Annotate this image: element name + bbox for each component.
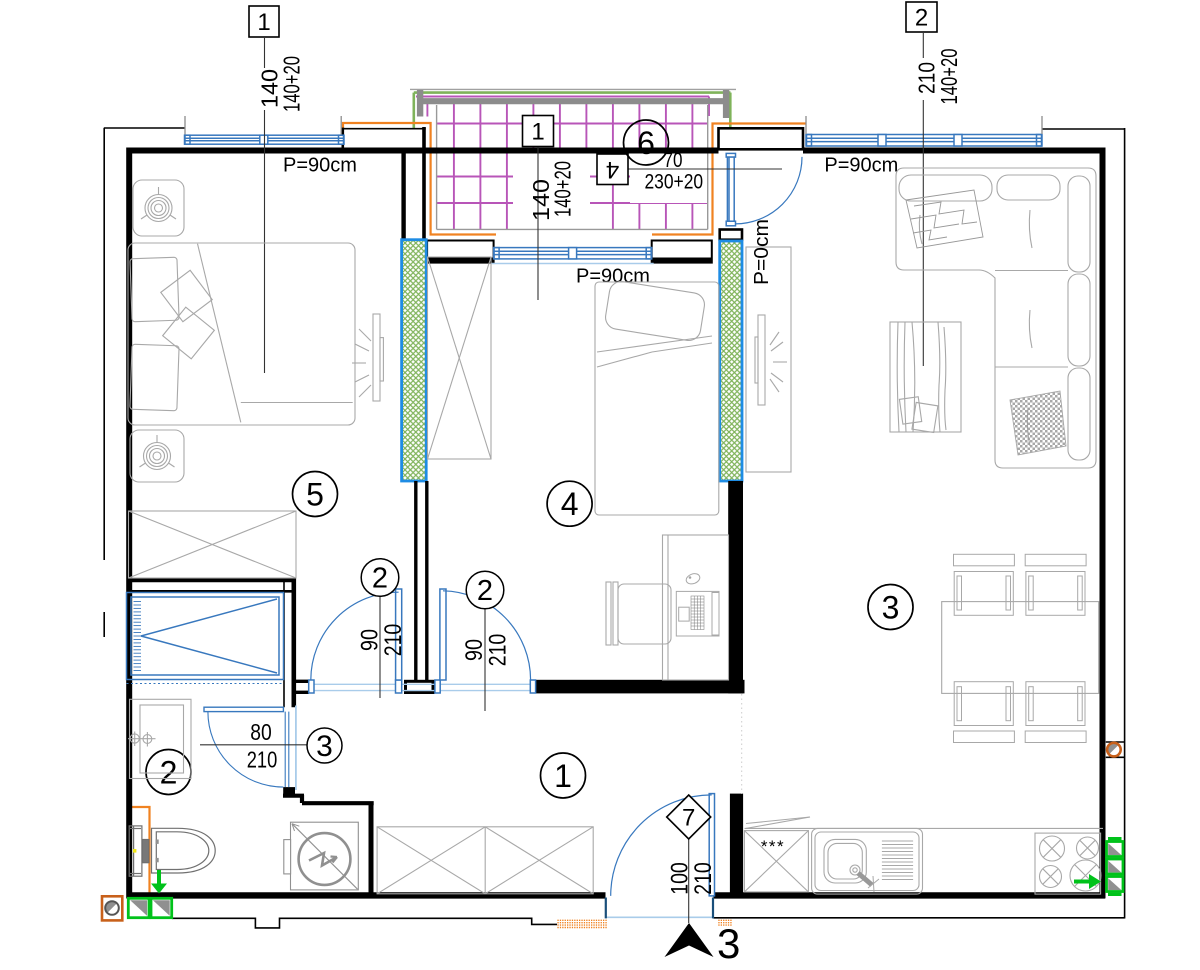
svg-text:P=90cm: P=90cm bbox=[283, 155, 357, 177]
svg-text:80: 80 bbox=[250, 719, 272, 745]
svg-text:140+20: 140+20 bbox=[936, 49, 962, 105]
svg-text:230+20: 230+20 bbox=[644, 171, 703, 194]
svg-text:5: 5 bbox=[306, 477, 324, 513]
svg-text:2: 2 bbox=[372, 563, 388, 595]
svg-text:1: 1 bbox=[554, 758, 572, 794]
svg-text:1: 1 bbox=[531, 119, 544, 146]
svg-text:210: 210 bbox=[380, 624, 407, 657]
svg-text:210: 210 bbox=[690, 862, 717, 895]
svg-text:210: 210 bbox=[485, 634, 512, 667]
svg-text:4: 4 bbox=[606, 156, 619, 183]
svg-text:***: *** bbox=[761, 837, 785, 856]
svg-text:1: 1 bbox=[257, 9, 270, 36]
svg-text:3: 3 bbox=[882, 590, 900, 626]
svg-text:2: 2 bbox=[915, 5, 928, 32]
svg-text:210: 210 bbox=[914, 62, 940, 94]
svg-text:140: 140 bbox=[528, 179, 554, 221]
svg-text:P=90cm: P=90cm bbox=[824, 155, 898, 177]
svg-text:4: 4 bbox=[561, 486, 579, 522]
svg-text:3: 3 bbox=[316, 730, 333, 763]
svg-text:6: 6 bbox=[637, 125, 655, 161]
svg-text:140: 140 bbox=[257, 69, 283, 108]
svg-text:2: 2 bbox=[477, 575, 493, 607]
svg-text:3: 3 bbox=[717, 920, 740, 967]
svg-text:P=0cm: P=0cm bbox=[751, 219, 773, 285]
svg-text:210: 210 bbox=[247, 747, 278, 773]
svg-text:7: 7 bbox=[682, 805, 695, 832]
